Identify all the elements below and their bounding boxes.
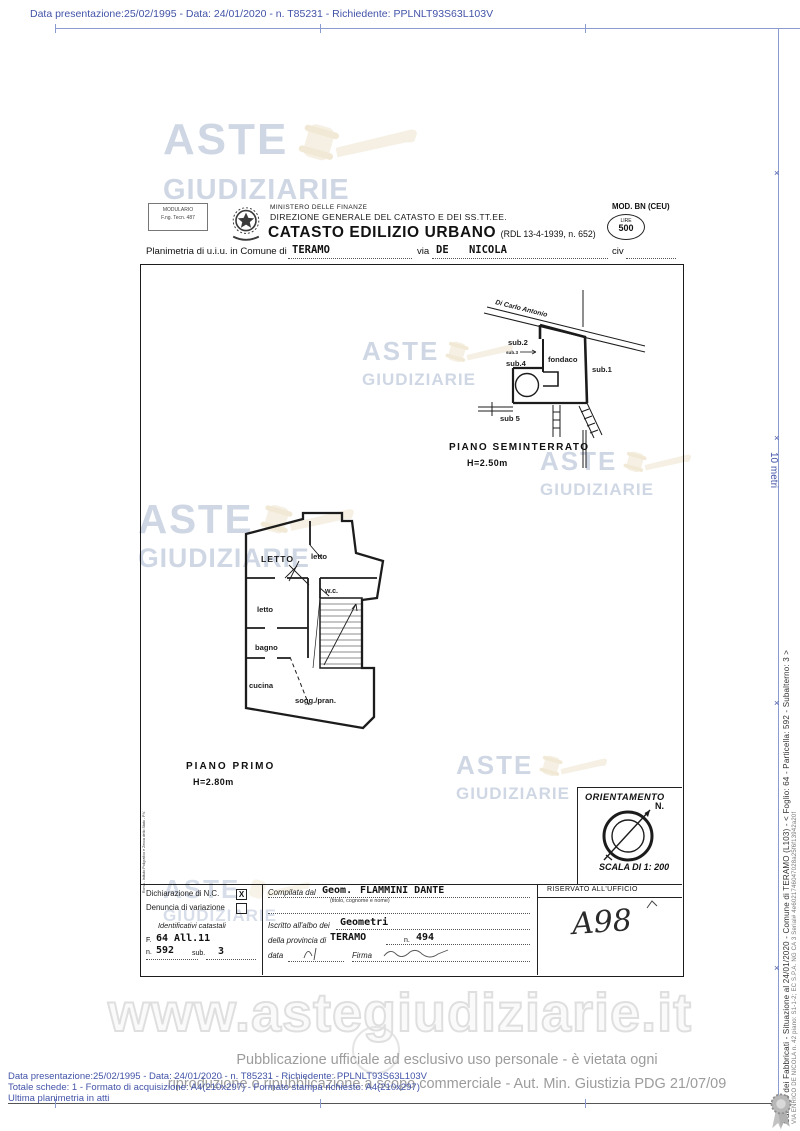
f-value: 64 All.11 — [156, 933, 210, 944]
ruler-tick — [585, 1099, 586, 1108]
scale-label: SCALA DI 1: 200 — [599, 862, 669, 872]
room-label-sogg: sogg./pran. — [295, 696, 336, 705]
scanned-cadastral-document: Data presentazione:25/02/1995 - Data: 24… — [0, 0, 800, 1131]
comune-value: TERAMO — [292, 244, 330, 256]
top-ruler-line — [55, 28, 800, 29]
sub-value: 3 — [218, 946, 224, 957]
planimetria-label: Planimetria di u.i.u. in Comune di — [146, 246, 287, 257]
dotted-line — [626, 257, 676, 259]
seminterrato-title: PIANO SEMINTERRATO — [449, 442, 590, 453]
lire-stamp: LIRE 500 — [607, 214, 645, 240]
room-label-wc: w.c. — [324, 588, 338, 595]
albo-value: Geometri — [340, 917, 388, 928]
right-ruler-line — [778, 28, 779, 1104]
civ-label: civ — [612, 246, 624, 257]
n-value: 592 — [156, 945, 174, 956]
room-label-sub2: sub.2 — [508, 338, 528, 347]
modulario-line1: MODULARIO — [149, 207, 207, 215]
room-label-letto-caps: LETTO — [261, 554, 294, 564]
catasto-title: CATASTO EDILIZIO URBANO — [268, 224, 496, 241]
ruler-cross: × — [774, 433, 779, 443]
room-label-sub3: sub.3 — [506, 350, 518, 355]
seminterrato-height: H=2.50m — [467, 458, 508, 468]
catasto-title-line: CATASTO EDILIZIO URBANO (RDL 13-4-1939, … — [268, 224, 596, 242]
ruler-scale-label: 10 metri — [768, 452, 779, 488]
ruler-tick — [320, 1099, 321, 1108]
dotted-line — [146, 958, 198, 960]
n-label: n. — [146, 949, 152, 956]
provincia-value: TERAMO — [330, 932, 366, 943]
state-emblem-icon — [226, 201, 266, 245]
handwritten-date-scribble — [300, 944, 330, 962]
name-hint: (titolo, cognome e nome) — [330, 898, 390, 904]
lire-value: 500 — [608, 224, 644, 233]
rosette-seal-icon — [764, 1090, 798, 1131]
primo-height: H=2.80m — [193, 777, 234, 787]
riservato-label: RISERVATO ALL'UFFICIO — [547, 886, 638, 893]
dichiarazione-checkbox: X — [236, 889, 247, 900]
room-label-sub4: sub.4 — [506, 359, 527, 368]
dichiarazione-label: Dichiarazione di N.C. — [146, 889, 219, 898]
scan-meta-top: Data presentazione:25/02/1995 - Data: 24… — [30, 8, 493, 20]
ruler-tick — [585, 24, 586, 33]
orientation-title: ORIENTAMENTO — [585, 792, 665, 802]
sidebar-catasto-info: Catasto dei Fabbricati - Situazione al 2… — [782, 650, 791, 1124]
compass-icon — [596, 805, 660, 865]
room-label-sub5: sub 5 — [500, 414, 521, 423]
printer-margin-note: Roma - Istituto Poligrafico e Zecca dell… — [142, 811, 146, 893]
scan-meta-bottom-2: Totale schede: 1 - Formato di acquisizio… — [8, 1082, 420, 1093]
site-watermark: www.astegiudiziarie.it — [0, 982, 800, 1044]
room-label-letto-tr: letto — [311, 552, 327, 561]
piano-primo-drawing: LETTO letto letto w.c. bagno cucina sogg… — [225, 505, 440, 750]
identificativi-label: Identificativi catastali — [158, 921, 226, 930]
gavel-icon — [294, 118, 424, 174]
footer-notice-line1: Pubblicazione ufficiale ad esclusivo uso… — [100, 1052, 794, 1068]
ruler-tick — [320, 24, 321, 33]
via-label: via — [417, 246, 429, 257]
sidebar-address-serial: VIA ENRICO DE NICOLA n. 42 piano: S1-1-2… — [792, 812, 798, 1124]
ruler-cross: × — [774, 698, 779, 708]
modulario-box: MODULARIO F.ng. Tecn. 487 — [148, 203, 208, 231]
scan-meta-bottom-1: Data presentazione:25/02/1995 - Data: 24… — [8, 1071, 427, 1082]
dotted-line — [432, 257, 608, 259]
dotted-line — [352, 960, 530, 962]
mod-bn-label: MOD. BN (CEU) — [612, 202, 670, 211]
f-label: F. — [146, 937, 151, 944]
room-label-letto-mid: letto — [257, 605, 273, 614]
dotted-line — [288, 257, 412, 259]
sub-label: sub. — [192, 950, 205, 957]
room-label-fondaco: fondaco — [548, 355, 578, 364]
room-label-cucina: cucina — [249, 681, 274, 690]
direzione-line: DIREZIONE GENERALE DEL CATASTO E DEI SS.… — [270, 212, 507, 222]
geom-label: Geom. — [322, 885, 352, 896]
catasto-ref: (RDL 13-4-1939, n. 652) — [501, 229, 596, 239]
aste-giudiziarie-watermark: ASTE GIUDIZIARIE — [163, 118, 424, 205]
firma-label: Firma — [352, 951, 372, 960]
room-label-sub1: sub.1 — [592, 365, 613, 374]
ruler-cross: × — [774, 963, 779, 973]
via-value: DE NICOLA — [436, 244, 507, 256]
modulario-line2: F.ng. Tecn. 487 — [149, 215, 207, 223]
watermark-giudiziarie-text: GIUDIZIARIE — [163, 176, 424, 205]
handwritten-tick — [645, 898, 661, 910]
denuncia-checkbox — [236, 903, 247, 914]
dotted-line — [336, 928, 530, 930]
dotted-line — [206, 958, 256, 960]
ruler-tick — [55, 1099, 56, 1108]
iscritto-label: Iscritto all'albo dei — [268, 921, 330, 930]
bottom-ruler-line — [8, 1103, 778, 1104]
watermark-aste-text: ASTE — [163, 118, 288, 162]
tecnico-name: FLAMMINI DANTE — [360, 885, 444, 896]
room-label-bagno: bagno — [255, 643, 278, 652]
ministero-line: MINISTERO DELLE FINANZE — [270, 204, 367, 211]
form-divider — [262, 884, 263, 975]
dotted-line — [268, 912, 530, 914]
ruler-cross: × — [774, 168, 779, 178]
primo-title: PIANO PRIMO — [186, 761, 275, 772]
n2-value: 494 — [416, 932, 434, 943]
dotted-line — [268, 896, 530, 898]
ruler-tick — [55, 24, 56, 33]
data-label: data — [268, 951, 283, 960]
office-handwritten-code: A98 — [571, 903, 633, 942]
denuncia-label: Denuncia di variazione — [146, 903, 225, 912]
